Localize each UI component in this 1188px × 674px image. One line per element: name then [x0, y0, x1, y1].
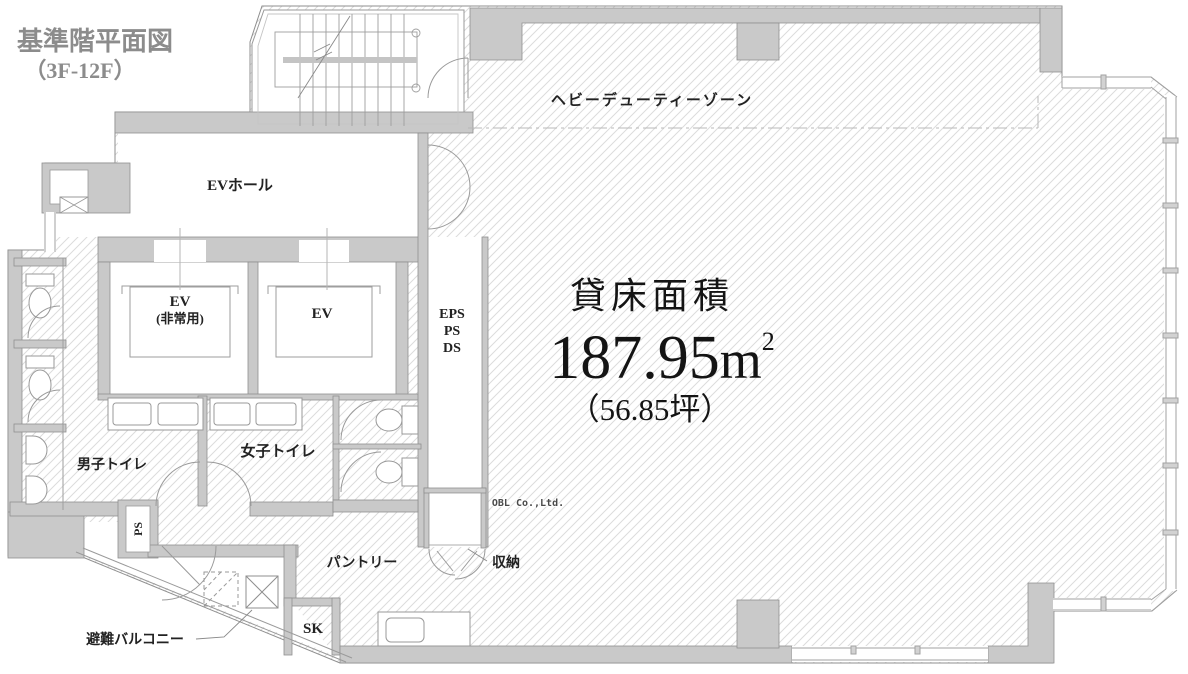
south-pillar [737, 600, 779, 648]
ev-door-gap-right [299, 240, 349, 262]
area-label: 貸床面積 [570, 276, 734, 316]
floor-plan-page: 基準階平面図 （3F-12F） ヘビーデューティーゾーン EVホール EV (非… [0, 0, 1188, 674]
ev-shaft-right-room [258, 262, 398, 394]
floor-plan-drawing: 基準階平面図 （3F-12F） ヘビーデューティーゾーン EVホール EV (非… [0, 0, 1188, 674]
ev-label: EV [312, 306, 333, 322]
area-value: 187.95m2 [549, 324, 775, 392]
watermark: OBL Co.,Ltd. [492, 498, 564, 509]
shaft-label-eps: EPS [439, 307, 465, 322]
sk-right-wall [332, 598, 340, 655]
page-title: 基準階平面図 [17, 26, 173, 56]
sk-left-wall [284, 598, 292, 655]
page-subtitle: （3F-12F） [24, 58, 135, 83]
equipment-box-icon [246, 576, 278, 608]
ev-front-wall [98, 237, 425, 262]
ev-emergency-label-1: EV [170, 294, 191, 310]
north-wall-end [1040, 8, 1062, 72]
womens-basin-counter [210, 398, 302, 430]
balcony-east-wall [284, 545, 296, 605]
area-tsubo: （56.85坪） [569, 392, 732, 427]
closet-right-wall [481, 488, 486, 548]
duct-box-icon [60, 197, 88, 213]
toilet-south-wall-c [333, 500, 418, 512]
closet-left-wall [424, 488, 429, 548]
west-window-band [44, 212, 56, 252]
toilet-south-wall-b [250, 502, 333, 516]
heavy-duty-zone-label: ヘビーデューティーゾーン [551, 91, 753, 109]
ev-right-wall [396, 262, 408, 396]
womens-toilet-label: 女子トイレ [240, 442, 315, 460]
mens-toilet-label: 男子トイレ [77, 457, 147, 473]
shaft-label-ds: DS [443, 341, 461, 356]
storage-label: 収納 [492, 554, 520, 571]
eps-west-wall [418, 133, 428, 547]
southwest-corner-wall [8, 512, 84, 558]
stair-landing-bar [283, 57, 417, 63]
south-wall [340, 646, 792, 663]
ev-mid-wall [248, 262, 258, 396]
shaft-label-ps: PS [444, 324, 461, 339]
sk-label: SK [303, 621, 323, 637]
mens-basin-counter [108, 398, 203, 430]
pantry-label: パントリー [327, 555, 398, 571]
closet-top-wall [424, 488, 486, 493]
pantry-sink-counter [378, 612, 470, 646]
ev-left-wall [98, 262, 110, 396]
west-wall [8, 250, 22, 518]
ev-emergency-label-2: (非常用) [156, 311, 204, 326]
ev-hall-label: EVホール [207, 177, 273, 194]
north-pillar [737, 23, 779, 60]
closet-interior [429, 493, 481, 545]
ev-shaft-left-room [110, 262, 248, 394]
balcony-label: 避難バルコニー [86, 631, 184, 648]
ps-label: PS [131, 522, 145, 536]
stair-south-wall [115, 112, 473, 133]
